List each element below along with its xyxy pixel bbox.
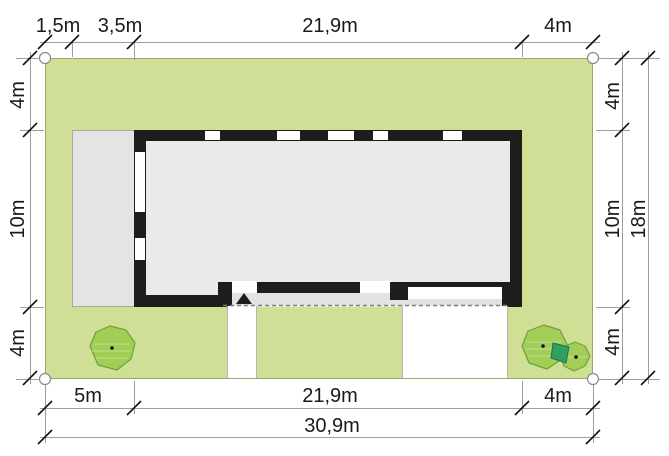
dim-label-right-total: 18m <box>629 200 649 239</box>
window-opening <box>205 131 220 140</box>
window-opening <box>277 131 300 140</box>
wall-right <box>510 130 522 307</box>
window-opening <box>328 131 354 140</box>
dim-label-left-2: 10m <box>8 200 28 239</box>
entrance-door-opening <box>232 281 257 293</box>
entry-path <box>227 306 257 378</box>
window-opening <box>443 131 462 140</box>
dim-label-top-1: 1,5m <box>36 16 80 36</box>
window-opening <box>135 238 145 260</box>
wall-corner-step <box>218 282 232 307</box>
dim-label-bottom-total: 30,9m <box>304 416 360 436</box>
terrace <box>72 130 135 307</box>
dim-label-top-3: 21,9m <box>302 16 358 36</box>
dim-label-top-4: 4m <box>544 16 572 36</box>
dim-label-bottom-2: 21,9m <box>302 386 358 406</box>
wall-corner-right <box>502 282 522 307</box>
dim-label-right-2: 10m <box>603 200 623 239</box>
window-opening <box>373 131 388 140</box>
window-opening <box>135 152 145 212</box>
driveway <box>402 306 508 378</box>
dim-label-left-3: 4m <box>8 329 28 357</box>
window-opening <box>360 281 392 293</box>
window-band <box>408 287 503 299</box>
wall-bottom-left <box>134 295 223 307</box>
dim-label-left-1: 4m <box>8 81 28 109</box>
dim-label-top-2: 3,5m <box>98 16 142 36</box>
dim-label-bottom-1: 5m <box>74 386 102 406</box>
house-footprint <box>134 130 522 307</box>
dim-label-right-3: 4m <box>603 328 623 356</box>
dim-label-bottom-3: 4m <box>544 386 572 406</box>
site-plan: 1,5m 3,5m 21,9m 4m 5m 21,9m 4m 30,9m 4m … <box>0 0 669 456</box>
dim-label-right-1: 4m <box>603 82 623 110</box>
wall-mid-step <box>390 282 408 300</box>
